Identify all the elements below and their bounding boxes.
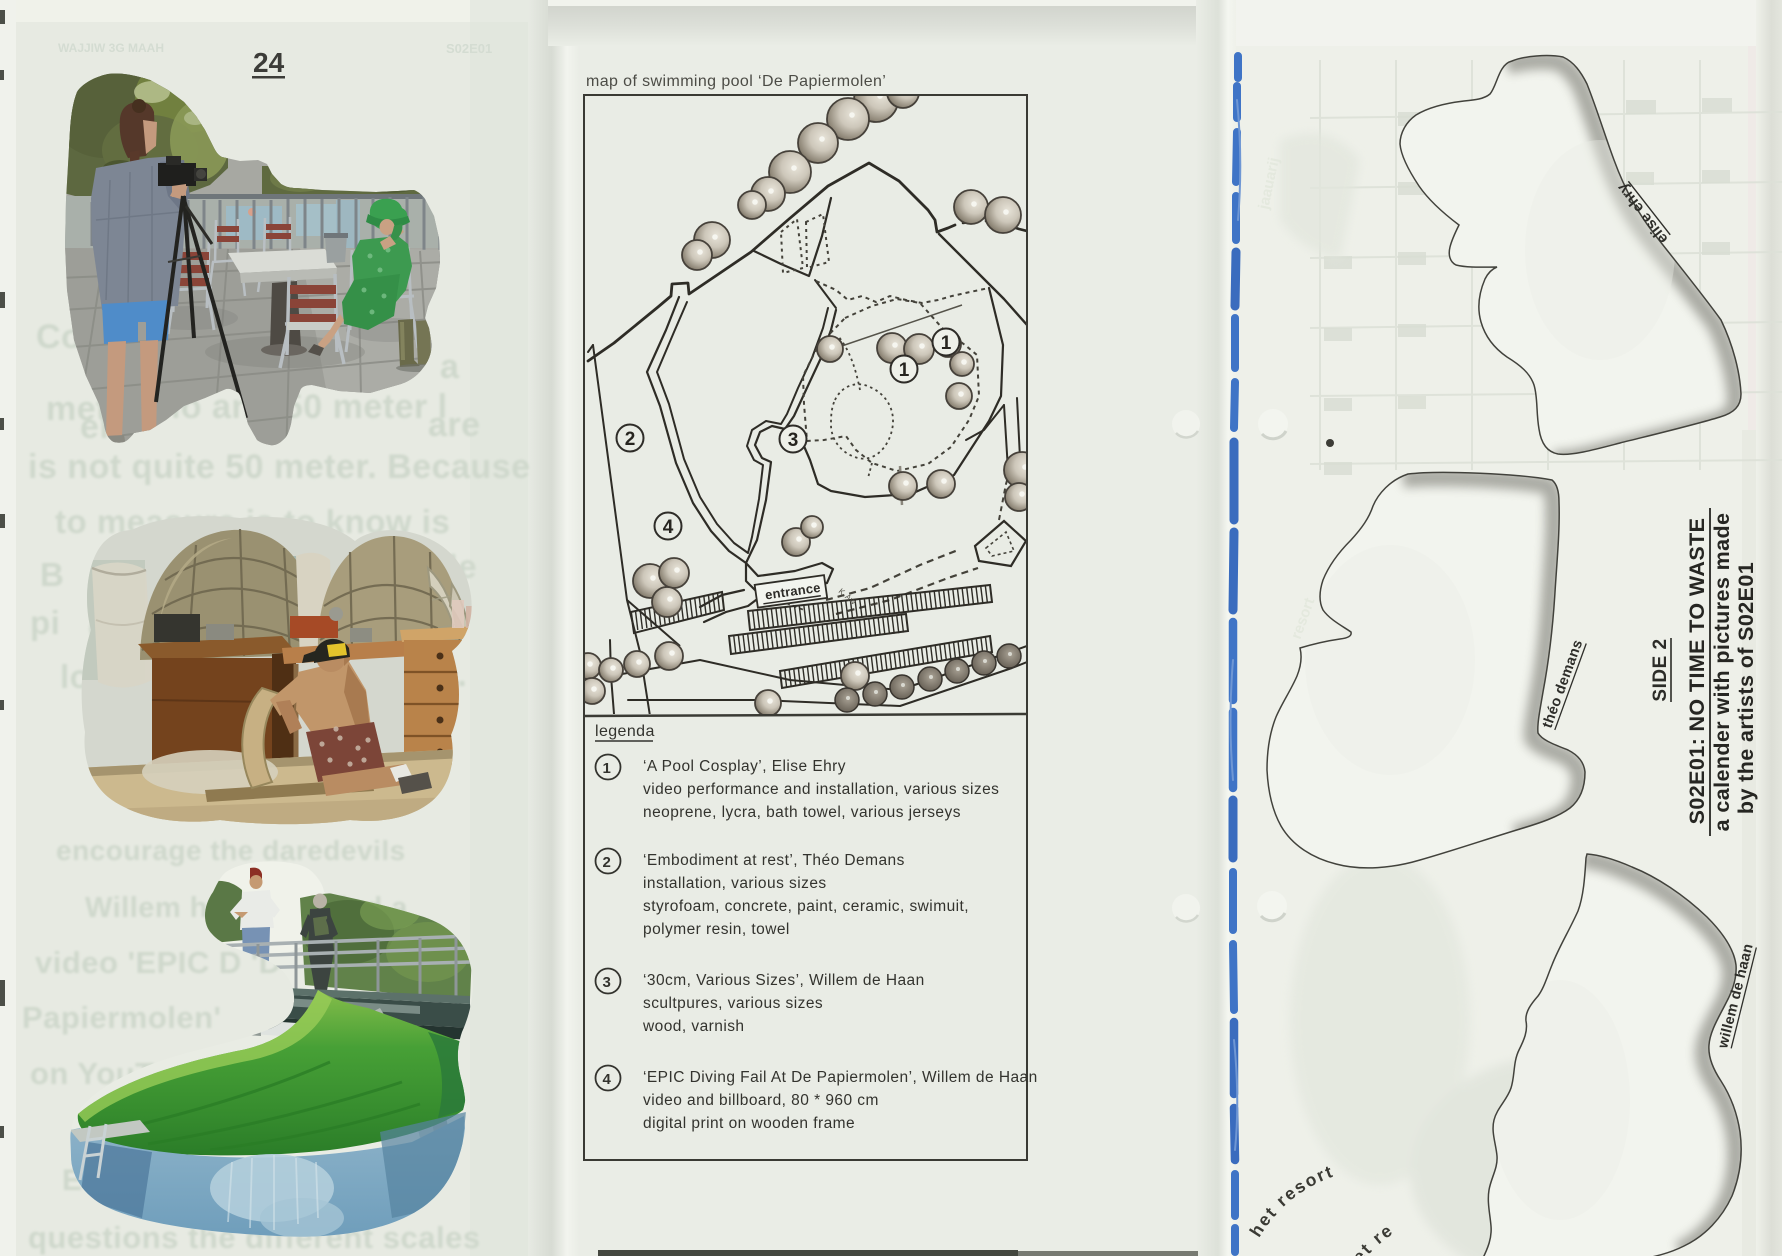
svg-text:video performance and installa: video performance and installation, vari… (643, 781, 999, 798)
svg-text:B: B (40, 556, 64, 593)
svg-text:digital print on wooden frame: digital print on wooden frame (643, 1115, 855, 1132)
svg-text:2: 2 (603, 854, 612, 871)
svg-text:neoprene, lycra, bath towel, v: neoprene, lycra, bath towel, various jer… (643, 804, 961, 821)
svg-text:styrofoam, concrete, paint, ce: styrofoam, concrete, paint, ceramic, swi… (643, 898, 969, 915)
svg-text:3: 3 (603, 974, 612, 991)
svg-text:wood, varnish: wood, varnish (642, 1018, 744, 1035)
svg-text:3: 3 (788, 430, 799, 451)
svg-text:polymer resin, towel: polymer resin, towel (643, 921, 790, 938)
svg-text:video and billboard, 80 * 960: video and billboard, 80 * 960 cm (643, 1092, 879, 1109)
svg-text:scultpures, various sizes: scultpures, various sizes (643, 995, 823, 1012)
svg-text:1: 1 (941, 333, 952, 354)
svg-text:‘Embodiment at rest’, Théo Dem: ‘Embodiment at rest’, Théo Demans (643, 852, 905, 869)
svg-text:S02E01: NO TIME TO WASTE: S02E01: NO TIME TO WASTE (1685, 518, 1709, 825)
svg-text:S02E01: S02E01 (446, 41, 492, 56)
svg-text:pi: pi (30, 604, 60, 641)
svg-text:a calender with pictures made: a calender with pictures made (1710, 513, 1734, 832)
svg-text:installation, various sizes: installation, various sizes (643, 875, 827, 892)
svg-text:Papiermolen': Papiermolen' (22, 1000, 221, 1035)
svg-text:24: 24 (253, 47, 285, 78)
svg-text:legenda: legenda (595, 723, 655, 740)
svg-text:4: 4 (663, 517, 674, 538)
svg-text:‘A Pool Cosplay’, Elise Ehry: ‘A Pool Cosplay’, Elise Ehry (643, 758, 846, 775)
svg-text:1: 1 (899, 360, 910, 381)
svg-text:SIDE 2: SIDE 2 (1650, 638, 1671, 701)
svg-text:is not quite 50 meter. Because: is not quite 50 meter. Because (28, 448, 531, 486)
svg-text:2: 2 (625, 429, 636, 450)
svg-text:WAJJIW 3G MAAH: WAJJIW 3G MAAH (58, 41, 164, 55)
svg-text:4: 4 (603, 1071, 612, 1088)
svg-text:map of swimming pool ‘De Papie: map of swimming pool ‘De Papiermolen’ (586, 73, 886, 90)
svg-text:a: a (440, 348, 460, 386)
svg-text:1: 1 (603, 760, 612, 777)
svg-text:encourage the daredevils: encourage the daredevils (56, 835, 406, 866)
svg-text:‘30cm, Various Sizes’, Willem: ‘30cm, Various Sizes’, Willem de Haan (643, 972, 925, 989)
svg-text:by the artists of S02E01: by the artists of S02E01 (1734, 562, 1758, 814)
svg-text:‘EPIC Diving Fail At De Papier: ‘EPIC Diving Fail At De Papiermolen’, Wi… (643, 1069, 1038, 1086)
